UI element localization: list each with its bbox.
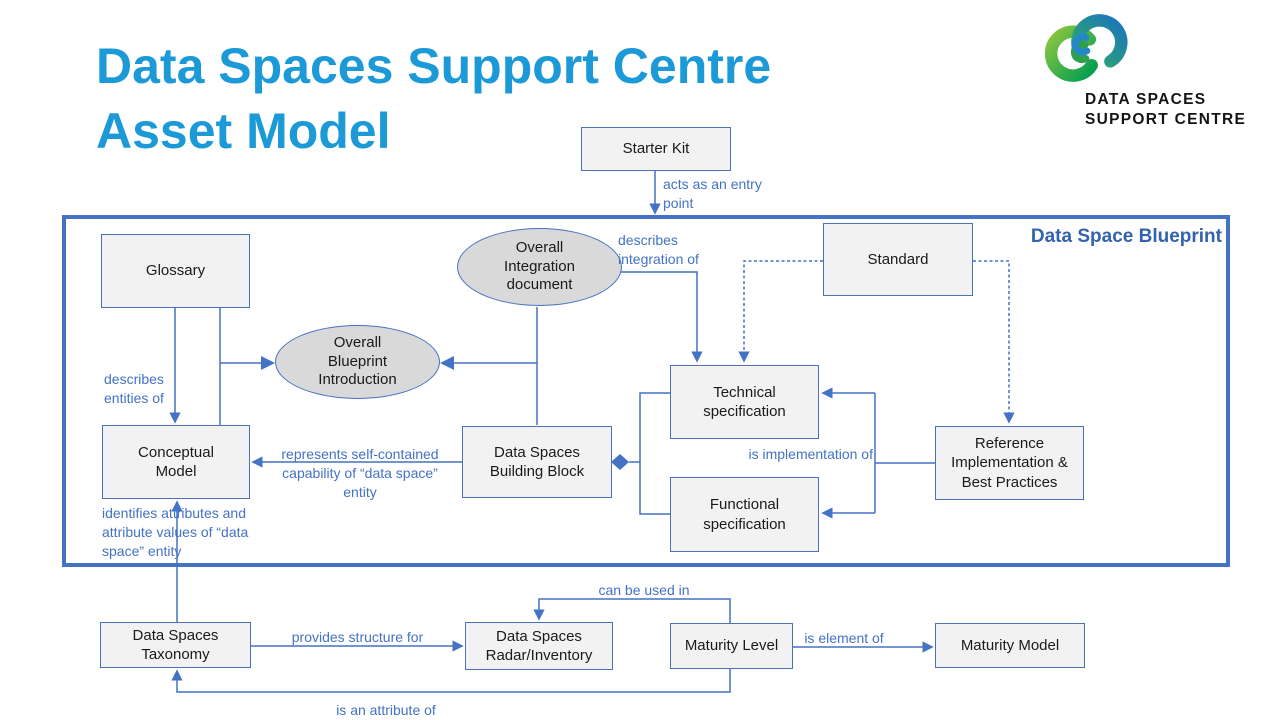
dssc-logo-text: DATA SPACES SUPPORT CENTRE [1085, 90, 1246, 131]
node-standard: Standard [823, 223, 973, 296]
logo-line1: DATA SPACES [1085, 90, 1246, 110]
node-technical-specification: Technical specification [670, 365, 819, 439]
node-maturity-level: Maturity Level [670, 623, 793, 669]
node-data-spaces-radar-inventory-label: Data Spaces Radar/Inventory [474, 627, 604, 666]
node-overall-blueprint-introduction: Overall Blueprint Introduction [275, 325, 440, 399]
slide: Data Spaces Support Centre Asset Model D… [0, 0, 1280, 720]
node-overall-integration-document: Overall Integration document [457, 228, 622, 306]
node-conceptual-model: Conceptual Model [102, 425, 250, 499]
dssc-logo: DATA SPACES SUPPORT CENTRE [1038, 6, 1274, 95]
logo-line2: SUPPORT CENTRE [1085, 110, 1246, 130]
connector-maturitylevel-taxonomy [177, 669, 730, 692]
edge-label-is-implementation: is implementation of [733, 445, 873, 464]
edge-label-is-attribute: is an attribute of [326, 701, 446, 720]
node-overall-blueprint-introduction-label: Overall Blueprint Introduction [308, 334, 408, 390]
edge-label-can-be-used: can be used in [584, 581, 704, 600]
edge-label-is-element: is element of [778, 629, 910, 648]
node-conceptual-model-label: Conceptual Model [126, 443, 226, 482]
edge-label-represents: represents self-contained capability of … [268, 445, 452, 501]
node-glossary: Glossary [101, 234, 250, 308]
node-maturity-model-label: Maturity Model [961, 636, 1059, 656]
blueprint-label: Data Space Blueprint [1014, 226, 1222, 248]
node-maturity-model: Maturity Model [935, 623, 1085, 668]
node-maturity-level-label: Maturity Level [685, 636, 778, 656]
node-reference-implementation-label: Reference Implementation & Best Practice… [945, 434, 1075, 493]
page-title: Data Spaces Support Centre Asset Model [96, 34, 886, 164]
node-reference-implementation: Reference Implementation & Best Practice… [935, 426, 1084, 500]
edge-label-provides-structure: provides structure for [255, 628, 460, 647]
dssc-logo-icon [1038, 6, 1134, 90]
node-functional-specification: Functional specification [670, 477, 819, 552]
node-functional-specification-label: Functional specification [690, 495, 800, 534]
node-starter-kit-label: Starter Kit [623, 139, 690, 159]
edge-label-describes-entities: describes entities of [104, 370, 186, 408]
node-data-spaces-building-block: Data Spaces Building Block [462, 426, 612, 498]
node-data-spaces-taxonomy-label: Data Spaces Taxonomy [126, 626, 226, 665]
edge-label-identifies: identifies attributes and attribute valu… [102, 504, 270, 560]
node-data-spaces-radar-inventory: Data Spaces Radar/Inventory [465, 622, 613, 670]
node-technical-specification-label: Technical specification [690, 383, 800, 422]
node-overall-integration-document-label: Overall Integration document [488, 239, 592, 295]
node-data-spaces-taxonomy: Data Spaces Taxonomy [100, 622, 251, 668]
node-data-spaces-building-block-label: Data Spaces Building Block [482, 443, 592, 482]
node-starter-kit: Starter Kit [581, 127, 731, 171]
edge-label-describes-integration: describes integration of [618, 231, 712, 269]
connector-maturitylevel-radar [539, 599, 730, 623]
node-glossary-label: Glossary [146, 261, 205, 281]
edge-label-acts-as-entry: acts as an entry point [663, 175, 775, 213]
node-standard-label: Standard [868, 250, 929, 270]
